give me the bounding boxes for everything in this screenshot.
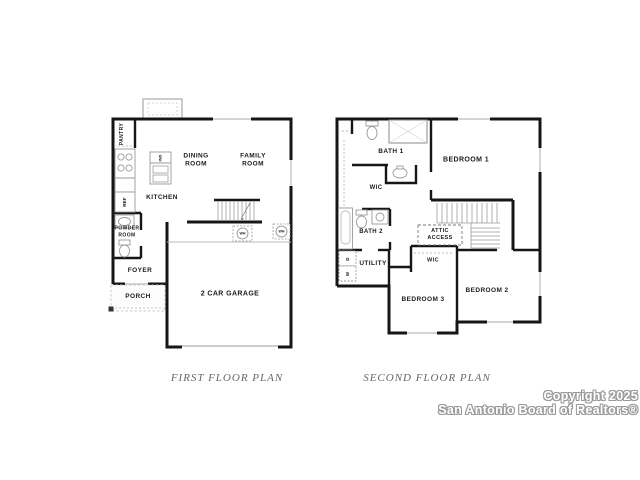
dryer-label: D <box>345 257 351 260</box>
floor-plan-image: PANTRY IND KITCHEN DINING ROOM FAMILY RO… <box>0 0 640 480</box>
wic-upper-label: WIC <box>370 185 383 193</box>
bath1-toilet-icon <box>366 121 378 140</box>
kitchen-label: KITCHEN <box>146 194 178 202</box>
wic-lower-label: WIC <box>427 257 439 264</box>
copyright-line1: Copyright 2025 <box>438 390 638 404</box>
foyer-label: FOYER <box>128 267 152 275</box>
first-floor-windows <box>125 116 294 350</box>
water-heater-1-label: WH <box>240 231 246 236</box>
kitchen-counter-icon <box>114 146 135 192</box>
bedroom1-label: BEDROOM 1 <box>443 155 489 164</box>
ref-label: REF <box>122 197 128 207</box>
bath2-label: BATH 2 <box>359 229 383 237</box>
chimney-bumpout-icon <box>143 99 182 119</box>
pantry-label: PANTRY <box>119 123 126 145</box>
powder-toilet-icon <box>119 240 130 257</box>
attic-access-label: ATTIC ACCESS <box>427 228 452 242</box>
utility-label: UTILITY <box>359 260 386 268</box>
first-floor-caption: FIRST FLOOR PLAN <box>171 372 283 384</box>
porch-label: PORCH <box>125 293 150 301</box>
copyright-line2: San Antonio Board of Realtors® <box>438 404 638 418</box>
bath1-sink-icon <box>393 166 407 178</box>
first-floor-stairs <box>218 201 254 221</box>
washer-label: W <box>345 271 351 275</box>
second-floor-caption: SECOND FLOOR PLAN <box>363 372 491 384</box>
family-room-label: FAMILY ROOM <box>240 153 266 170</box>
bath1-label: BATH 1 <box>378 148 403 156</box>
island-label: IND <box>157 155 162 162</box>
bath2-sink-icon <box>372 210 388 224</box>
bedroom3-label: BEDROOM 3 <box>402 296 445 304</box>
copyright-watermark: Copyright 2025 San Antonio Board of Real… <box>438 390 638 417</box>
water-heater-2-label: WH <box>279 229 285 234</box>
bath2-toilet-icon <box>356 210 367 228</box>
garage-label: 2 CAR GARAGE <box>201 289 259 298</box>
bedroom2-label: BEDROOM 2 <box>466 287 509 295</box>
dining-room-label: DINING ROOM <box>183 153 208 170</box>
bath1-shower-icon <box>389 120 427 143</box>
powder-room-label: POWDER ROOM <box>115 226 140 239</box>
bath2-tub-icon <box>339 208 353 249</box>
first-floor-plan <box>109 99 295 350</box>
